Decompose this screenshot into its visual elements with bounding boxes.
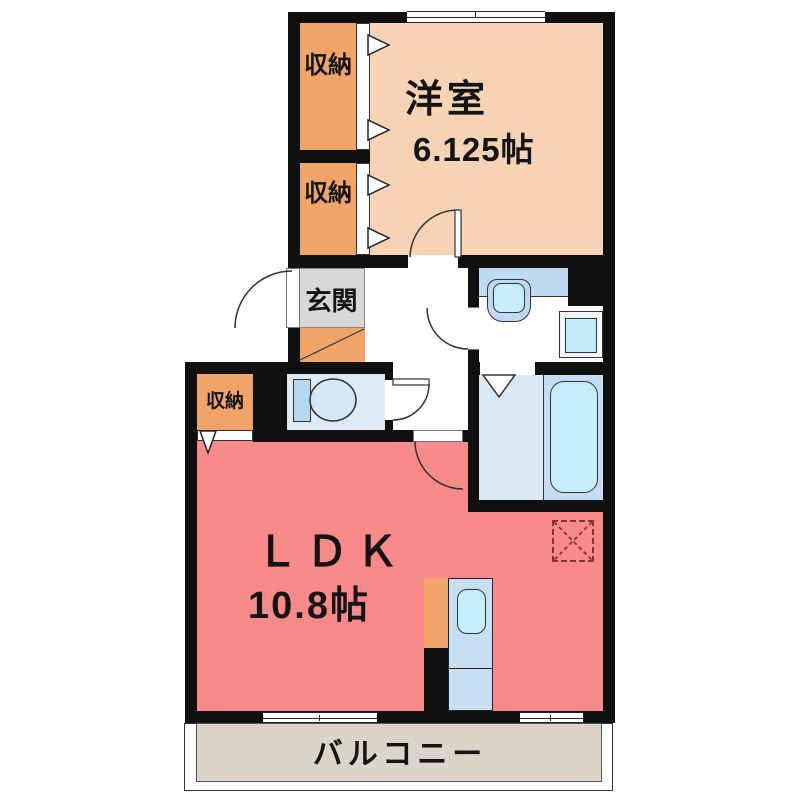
ldk-closet-label: 収納 — [197, 391, 253, 414]
toilet-bowl — [310, 379, 356, 421]
closet-door-triangle — [368, 228, 389, 248]
balcony-label: バルコニー — [185, 737, 615, 773]
ldk-name: ＬＤＫ — [256, 527, 406, 577]
toilet-door-leaf — [393, 379, 429, 385]
entrance-label: 玄関 — [298, 286, 365, 317]
floorplan-canvas: 収納 収納 洋室 6.125帖 玄関 収納 ＬＤＫ 10.8帖 バルコニー — [0, 0, 800, 800]
closet-mid-label: 収納 — [302, 180, 354, 209]
closet-door-triangle — [368, 175, 389, 195]
entry-door-arc — [235, 271, 292, 328]
closet-door-triangle — [368, 35, 389, 55]
washroom-door-arc — [427, 308, 468, 349]
western-room-door-arc — [410, 210, 458, 257]
shoe-cabinet-diagonal — [300, 329, 364, 360]
toilet-door-arc — [393, 384, 429, 420]
western-room-name: 洋室 — [405, 78, 489, 124]
closet-top-label: 収納 — [302, 52, 354, 81]
ldk-size: 10.8帖 — [248, 584, 370, 630]
closet-door-triangle — [368, 120, 389, 140]
bathroom-folding-door — [483, 375, 515, 397]
symbols-overlay — [0, 0, 800, 800]
western-room-door-leaf — [455, 210, 461, 257]
ldk-door-arc — [415, 441, 463, 489]
western-room-size: 6.125帖 — [413, 130, 535, 170]
ldk-closet-door-triangle — [200, 431, 216, 453]
